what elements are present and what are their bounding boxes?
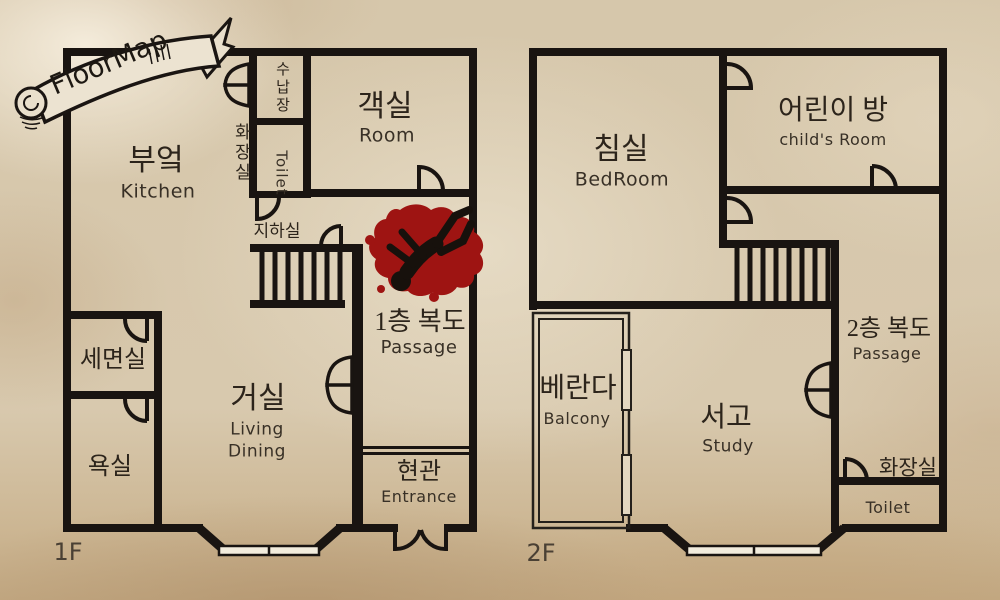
toilet-door-icon	[257, 197, 279, 219]
toilet2-label-en: Toilet	[866, 500, 911, 516]
childs-room-label-ko: 어린이 방	[778, 97, 888, 125]
entrance-label-en: Entrance	[381, 489, 457, 505]
blood-drop	[429, 292, 439, 302]
entrance-label-ko: 현관	[397, 460, 441, 484]
toilet1-label-en: Toilet	[274, 150, 289, 195]
floorplan-drawing: FloorMap	[0, 0, 1000, 600]
floor1-label: 1F	[53, 540, 82, 564]
balcony-label-en: Balcony	[544, 411, 611, 427]
passage1-label-en: Passage	[381, 339, 458, 357]
closet-folding-door-icon	[225, 64, 249, 106]
balcony-label-ko: 베란다	[539, 375, 616, 403]
basement-stairs-icon	[262, 252, 340, 300]
study-double-door-icon	[806, 363, 831, 417]
passage2-label-ko: 2층 복도	[847, 317, 931, 341]
toilet1-label-ko: 화장실	[233, 123, 250, 183]
floorplan-canvas: FloorMap 부엌 Kitchen 수납장 화장실 Toilet 객실 Ro…	[0, 0, 1000, 600]
bedroom-door-icon	[727, 64, 751, 88]
upper-stairs-icon	[737, 248, 828, 301]
passage2-label-en: Passage	[853, 346, 922, 362]
entrance-door-left-icon	[395, 530, 420, 549]
living-label-en1: Living	[230, 422, 284, 439]
guest-room-label-en: Room	[359, 127, 415, 146]
guest-room-door-icon	[419, 167, 443, 191]
bay-window-2f	[664, 528, 844, 555]
study-label-en: Study	[702, 439, 754, 456]
bath-label-ko: 욕실	[88, 455, 132, 479]
floor2-label: 2F	[526, 541, 555, 565]
sliding-door-icon	[622, 455, 631, 515]
kitchen-label-en: Kitchen	[121, 183, 196, 202]
study-label-ko: 서고	[700, 404, 752, 432]
entrance-door-right-icon	[421, 530, 446, 549]
blood-drop	[377, 285, 385, 293]
kitchen-label-ko: 부엌	[128, 146, 183, 176]
bay-window-1f	[199, 528, 340, 555]
living-label-ko: 거실	[230, 384, 285, 414]
washroom-door-icon	[125, 319, 147, 341]
childs-room-label-en: child's Room	[779, 132, 886, 148]
guest-room-label-ko: 객실	[357, 92, 412, 122]
bath-door-icon	[125, 399, 147, 421]
toilet2-label-ko: 화장실	[879, 458, 937, 479]
passage-door-icon	[727, 198, 751, 222]
living-label-en2: Dining	[228, 444, 286, 461]
sliding-door-icon	[622, 350, 631, 410]
closet-label-ko: 수납장	[274, 61, 289, 115]
bedroom-label-ko: 침실	[593, 135, 648, 165]
living-double-door-icon	[327, 357, 352, 413]
ribbon-roll	[16, 88, 46, 118]
blood-drop	[365, 235, 375, 245]
passage1-label-ko: 1층 복도	[374, 309, 465, 335]
crime-scene	[365, 204, 483, 302]
ribbon-banner: FloorMap	[16, 18, 233, 129]
basement-door-icon	[321, 226, 341, 246]
bedroom-label-en: BedRoom	[575, 171, 669, 190]
basement-label-ko: 지하실	[254, 223, 301, 240]
washroom-label-ko: 세면실	[80, 348, 146, 372]
